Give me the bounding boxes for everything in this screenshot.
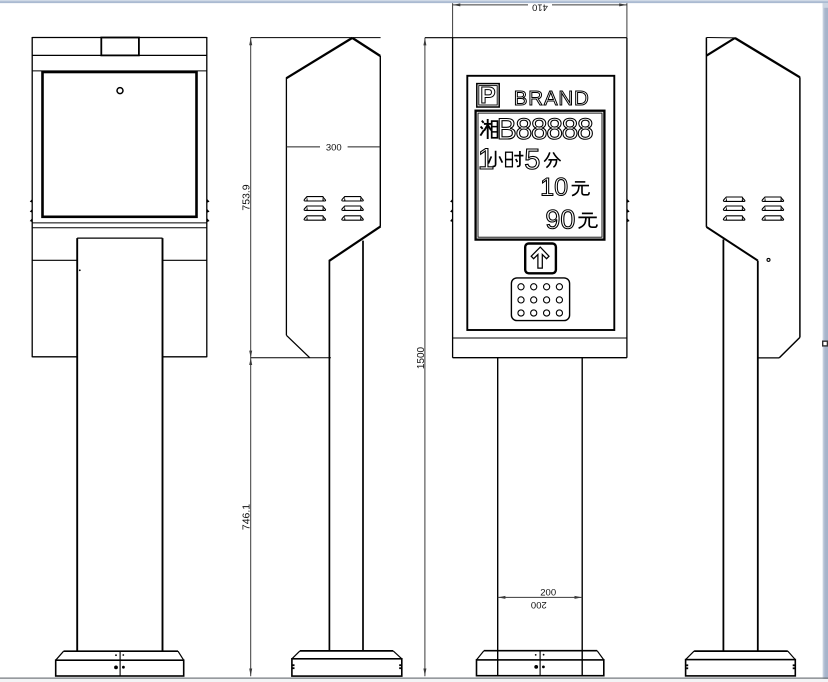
svg-text:5: 5 xyxy=(524,144,540,176)
svg-text:BRAND: BRAND xyxy=(514,87,590,110)
svg-text:746.1: 746.1 xyxy=(241,504,253,530)
svg-text:B88888: B88888 xyxy=(497,113,593,146)
svg-text:753.9: 753.9 xyxy=(241,184,253,210)
svg-text:200: 200 xyxy=(540,587,556,598)
svg-text:10: 10 xyxy=(540,174,568,202)
svg-text:410: 410 xyxy=(532,1,548,12)
svg-text:1500: 1500 xyxy=(416,346,427,369)
svg-text:200: 200 xyxy=(531,599,547,610)
svg-text:1: 1 xyxy=(478,143,495,176)
svg-text:P: P xyxy=(480,82,495,108)
svg-text:300: 300 xyxy=(326,143,342,154)
svg-text:90: 90 xyxy=(545,204,575,234)
